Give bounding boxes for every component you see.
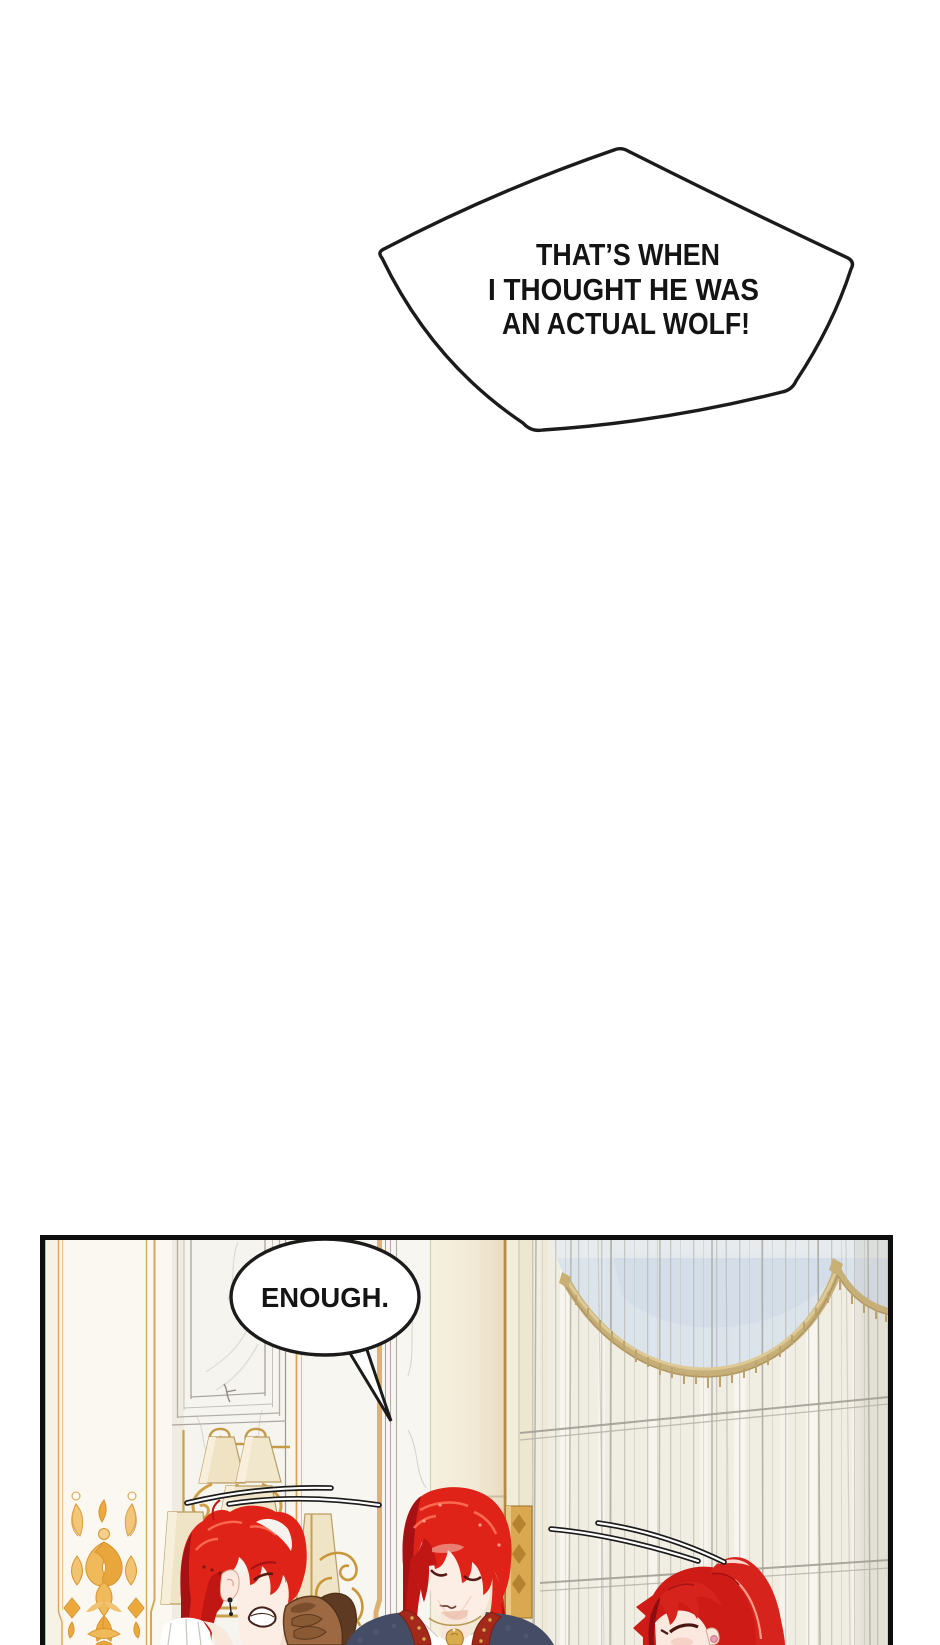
- svg-text:ENOUGH.: ENOUGH.: [261, 1282, 389, 1313]
- svg-text:AN ACTUAL WOLF!: AN ACTUAL WOLF!: [502, 306, 750, 341]
- svg-text:THAT’S WHEN: THAT’S WHEN: [536, 237, 720, 272]
- svg-text:I THOUGHT HE WAS: I THOUGHT HE WAS: [488, 272, 759, 307]
